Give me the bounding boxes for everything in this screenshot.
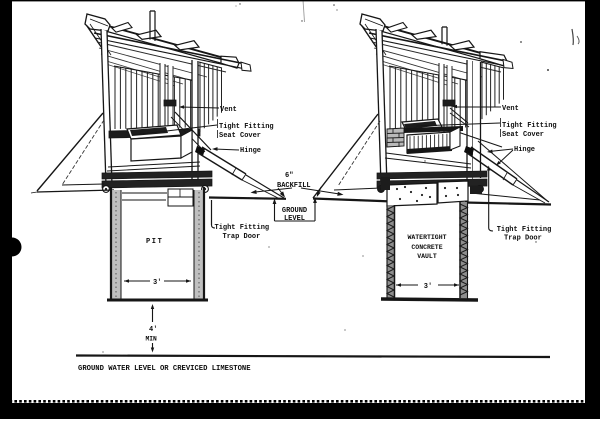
svg-text:MIN: MIN xyxy=(146,336,158,343)
svg-text:Seat Cover: Seat Cover xyxy=(502,131,544,139)
svg-text:GROUND WATER LEVEL OR CREVICED: GROUND WATER LEVEL OR CREVICED LIMESTONE xyxy=(78,365,251,373)
svg-text:Vent: Vent xyxy=(502,105,519,113)
svg-text:PIT: PIT xyxy=(146,238,163,246)
svg-text:4': 4' xyxy=(149,326,157,334)
svg-text:Tight Fitting: Tight Fitting xyxy=(497,226,552,234)
svg-text:VAULT: VAULT xyxy=(417,253,437,260)
svg-text:Tight Fitting: Tight Fitting xyxy=(502,122,557,130)
svg-text:3': 3' xyxy=(424,283,432,291)
svg-text:GROUND: GROUND xyxy=(282,207,307,215)
svg-text:3': 3' xyxy=(153,279,161,287)
svg-text:LEVEL: LEVEL xyxy=(284,215,305,223)
svg-text:WATERTIGHT: WATERTIGHT xyxy=(407,234,446,241)
svg-text:Tight Fitting: Tight Fitting xyxy=(219,123,274,131)
svg-text:Vent: Vent xyxy=(220,106,237,114)
svg-text:Trap Door: Trap Door xyxy=(504,235,542,243)
svg-text:Tight Fitting: Tight Fitting xyxy=(215,224,270,232)
svg-text:Seat Cover: Seat Cover xyxy=(219,132,261,140)
svg-text:Trap Door: Trap Door xyxy=(223,233,261,241)
svg-text:Hinge: Hinge xyxy=(514,146,535,154)
svg-text:CONCRETE: CONCRETE xyxy=(411,244,442,251)
svg-text:6": 6" xyxy=(285,172,293,180)
svg-text:Hinge: Hinge xyxy=(240,147,261,155)
